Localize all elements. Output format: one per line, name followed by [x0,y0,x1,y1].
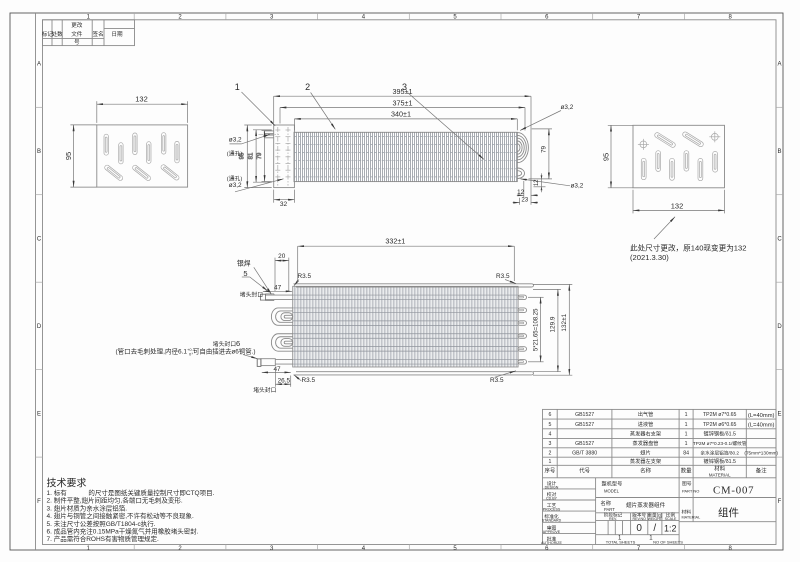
svg-text:20: 20 [278,253,286,260]
svg-text:蒸发器右支架: 蒸发器右支架 [630,430,661,438]
svg-text:1: 1 [548,459,551,465]
svg-text:WEIGHT: WEIGHT [648,517,663,521]
svg-text:TP2M ø7*0.23-0.1/螺纹管: TP2M ø7*0.23-0.1/螺纹管 [693,440,747,447]
svg-text:132±1: 132±1 [561,313,568,331]
svg-text:组件: 组件 [718,506,739,519]
svg-text:F: F [778,499,782,505]
svg-text:A: A [37,62,41,68]
svg-text:7. 产品需符合ROHS有害物质管理规定.: 7. 产品需符合ROHS有害物质管理规定. [47,534,160,543]
svg-text:PART: PART [604,507,615,512]
svg-text:5: 5 [548,422,551,428]
svg-text:数量: 数量 [681,467,692,475]
svg-text:(管口去毛刺处理,内径6.1+0.3 0,可自由插进去ø6: (管口去毛刺处理,内径6.1+0.3 0,可自由插进去ø6铜管.) [116,347,256,357]
svg-text:蒸发器左支架: 蒸发器左支架 [630,457,661,465]
svg-text:文件: 文件 [71,30,83,38]
svg-text:C: C [37,237,42,243]
svg-text:技术要求: 技术要求 [47,476,87,489]
svg-text:ø3,2: ø3,2 [561,104,574,111]
svg-text:MODEL: MODEL [604,489,620,494]
svg-text:图号: 图号 [682,481,692,487]
svg-text:26.5: 26.5 [278,377,291,384]
svg-text:银焊: 银焊 [237,258,251,267]
svg-text:处数: 处数 [51,30,63,38]
svg-text:镀锌钢板/δ1.5: 镀锌钢板/δ1.5 [704,457,736,465]
svg-text:12: 12 [534,179,540,186]
svg-text:4: 4 [548,432,551,438]
svg-text:D: D [777,324,782,330]
svg-text:翅片: 翅片 [640,449,650,457]
svg-text:5*21.65=108.25: 5*21.65=108.25 [533,308,539,351]
svg-text:R3.5: R3.5 [490,377,504,384]
svg-text:1: 1 [685,432,688,438]
svg-text:(L=40mm): (L=40mm) [748,423,775,429]
svg-text:3. 翅片材质为亲水涂层铝箔.: 3. 翅片材质为亲水涂层铝箔. [47,503,128,512]
svg-text:GB/T 3880: GB/T 3880 [572,451,597,457]
svg-text:CD.BY: CD.BY [546,496,558,500]
svg-text:B: B [777,149,781,155]
svg-text:2: 2 [548,451,551,457]
svg-text:81: 81 [249,152,255,159]
svg-text:STANDARD: STANDARD [542,519,562,523]
svg-text:PART NO: PART NO [682,489,699,494]
svg-text:3: 3 [548,441,551,447]
svg-text:GB1527: GB1527 [575,441,594,447]
svg-text:1: 1 [685,422,688,428]
svg-text:132: 132 [671,201,684,210]
svg-text:79: 79 [541,146,548,154]
svg-text:47: 47 [273,366,281,373]
svg-text:(L=40mm): (L=40mm) [748,413,775,419]
svg-text:2. 制件平整,翅片间距均匀,各端口无毛刺及变形.: 2. 制件平整,翅片间距均匀,各端口无毛刺及变形. [47,496,183,505]
svg-text:6: 6 [548,412,551,418]
svg-text:进液管: 进液管 [638,420,654,428]
svg-text:1:2: 1:2 [664,524,677,534]
svg-text:ø3,2: ø3,2 [571,183,584,190]
svg-text:(通孔): (通孔) [227,149,243,157]
svg-text:A: A [777,62,781,68]
svg-text:6. 成品管内充注0.15MPa干燥氮气并用橡胶堵头密封.: 6. 成品管内充注0.15MPa干燥氮气并用橡胶堵头密封. [47,527,199,536]
svg-text:此处尺寸更改，原140现变更为132: 此处尺寸更改，原140现变更为132 [630,243,746,253]
svg-text:R3.5: R3.5 [302,377,316,384]
svg-text:亲水涂层铝箔/δ0.2: 亲水涂层铝箔/δ0.2 [700,450,739,457]
svg-text:D: D [37,324,42,330]
svg-text:129.9: 129.9 [550,316,557,332]
svg-text:B: B [37,149,41,155]
svg-text:堵头封口: 堵头封口 [253,386,276,394]
svg-text:32: 32 [280,201,288,208]
svg-text:TP2M ø7*0.65: TP2M ø7*0.65 [703,412,737,418]
svg-text:号: 号 [74,39,80,46]
svg-text:镀锌钢板/δ1.5: 镀锌钢板/δ1.5 [704,430,736,438]
svg-text:NO OF SHEETS: NO OF SHEETS [653,540,683,545]
svg-text:DESIGN: DESIGN [545,485,559,489]
svg-text:0: 0 [636,523,642,534]
svg-text:MATERIAL: MATERIAL [709,473,731,478]
svg-text:95: 95 [64,152,73,160]
svg-text:名称: 名称 [601,499,611,507]
svg-text:出气管: 出气管 [638,410,654,418]
svg-text:1: 1 [685,441,688,447]
svg-text:79: 79 [257,152,263,159]
svg-text:序号: 序号 [545,467,556,475]
svg-text:332±1: 332±1 [385,237,405,246]
svg-text:2: 2 [305,82,310,92]
svg-text:更改: 更改 [71,21,83,29]
svg-text:AUTHORIZE: AUTHORIZE [541,541,562,545]
svg-text:/: / [653,523,656,534]
svg-text:PROCESS: PROCESS [543,508,561,512]
svg-text:TOTAL SHEETS: TOTAL SHEETS [606,540,636,545]
svg-text:SCALE: SCALE [665,517,677,521]
svg-text:蒸发器盘管: 蒸发器盘管 [633,439,659,447]
svg-text:1: 1 [235,82,240,92]
svg-text:5. 未注尺寸公差按照GB/T1804-c执行.: 5. 未注尺寸公差按照GB/T1804-c执行. [47,519,156,528]
svg-text:4. 翅片与铜管之间接触紧密,不许有松动等不良现象.: 4. 翅片与铜管之间接触紧密,不许有松动等不良现象. [47,511,195,520]
svg-text:47: 47 [274,285,282,292]
svg-text:ø3,2: ø3,2 [229,182,242,189]
svg-text:整机型号: 整机型号 [602,479,623,487]
svg-text:ø3,2: ø3,2 [229,136,242,143]
svg-text:12: 12 [517,189,524,196]
svg-text:375±1: 375±1 [393,98,413,107]
svg-text:340±1: 340±1 [391,110,411,119]
svg-text:MATERIAL: MATERIAL [682,515,701,519]
svg-text:R3.5: R3.5 [496,273,510,280]
svg-text:84: 84 [683,451,689,457]
svg-text:(75mm*130mm): (75mm*130mm) [744,451,778,456]
svg-text:GB1527: GB1527 [575,412,594,418]
svg-text:5: 5 [243,269,247,278]
svg-text:GB1527: GB1527 [575,422,594,428]
svg-text:1: 1 [685,412,688,418]
svg-text:95: 95 [601,153,610,161]
svg-text:REV.: REV. [609,517,617,521]
svg-text:E: E [37,412,41,418]
svg-text:材料: 材料 [714,465,725,473]
svg-text:代号: 代号 [579,467,590,475]
svg-text:395±1: 395±1 [393,87,413,96]
svg-text:堵头封口: 堵头封口 [240,291,263,299]
svg-text:132: 132 [135,95,148,104]
svg-text:签名: 签名 [92,30,103,38]
svg-text:23: 23 [521,196,528,203]
svg-text:1. 标有 的尺寸是图纸关键质量控制尺: 1. 标有 的尺寸是图纸关键质量控制尺寸即CTQ项目. [47,488,215,497]
svg-text:翅片蒸发器组件: 翅片蒸发器组件 [626,501,666,509]
svg-text:C: C [777,237,782,243]
svg-text:R3.5: R3.5 [298,273,312,280]
svg-text:E: E [777,412,781,418]
svg-text:APPROVE: APPROVE [543,530,561,534]
svg-text:备注: 备注 [756,467,767,475]
svg-text:CM-007: CM-007 [713,484,754,496]
svg-text:F: F [37,499,41,505]
svg-text:日期: 日期 [111,31,123,38]
svg-text:名称: 名称 [640,467,651,475]
svg-text:TP2M ø6*0.65: TP2M ø6*0.65 [703,422,737,428]
svg-text:(2021.3.30): (2021.3.30) [630,253,669,262]
svg-text:REV.NO: REV.NO [632,517,646,521]
